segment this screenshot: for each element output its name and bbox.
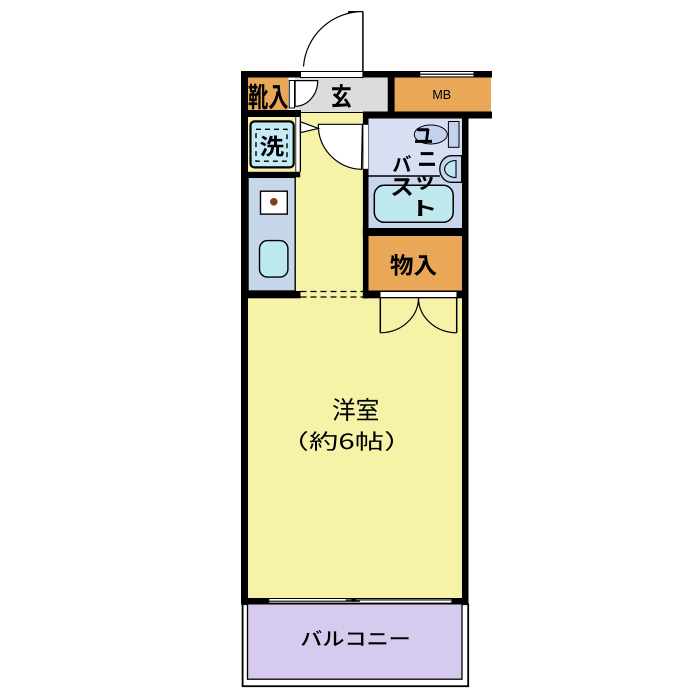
svg-text:MB: MB (432, 88, 451, 102)
